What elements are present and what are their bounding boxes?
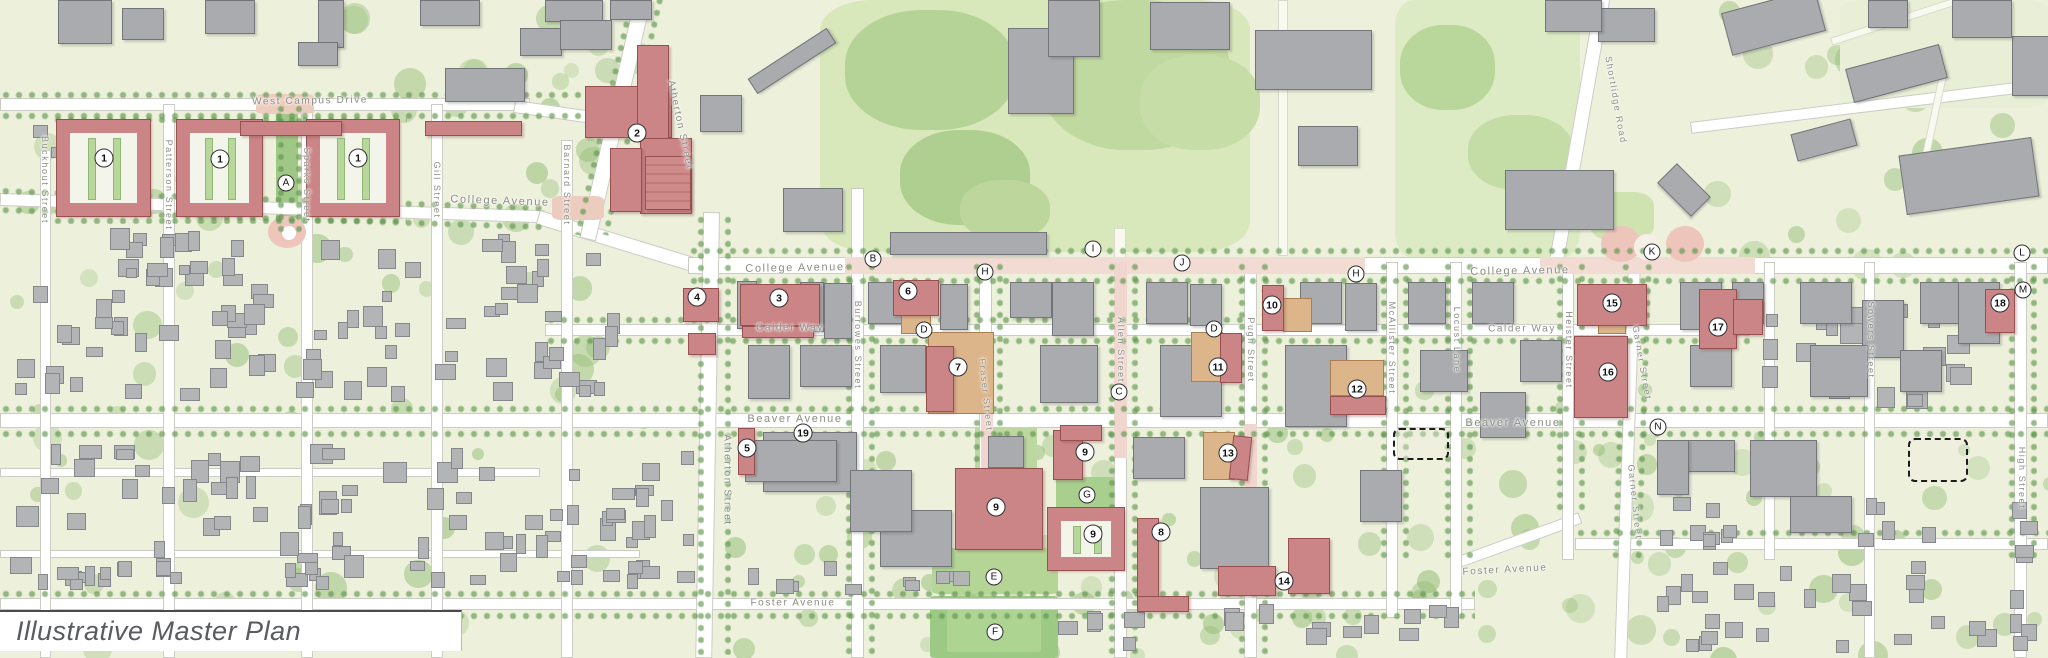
green-space bbox=[845, 10, 1015, 130]
number-marker-7: 7 bbox=[949, 358, 968, 377]
existing-building bbox=[988, 436, 1024, 468]
tree-canopy bbox=[80, 269, 98, 287]
existing-building bbox=[1345, 283, 1377, 331]
existing-building bbox=[445, 68, 525, 102]
existing-house bbox=[1969, 621, 1986, 636]
existing-house bbox=[395, 323, 410, 337]
existing-building bbox=[520, 28, 562, 56]
existing-house bbox=[70, 579, 83, 591]
letter-marker-L: L bbox=[2014, 245, 2031, 262]
existing-house bbox=[557, 571, 570, 581]
existing-house bbox=[100, 567, 111, 580]
existing-house bbox=[537, 259, 549, 277]
street-label: McAllister Street bbox=[1387, 302, 1397, 395]
existing-house bbox=[493, 382, 512, 401]
existing-house bbox=[15, 383, 28, 395]
street-label: Foster Avenue bbox=[1462, 562, 1548, 577]
tree-canopy bbox=[1478, 625, 1496, 643]
courtyard-green bbox=[362, 138, 370, 200]
letter-marker-G: G bbox=[1079, 487, 1096, 504]
existing-house bbox=[495, 303, 508, 316]
existing-building bbox=[700, 95, 742, 132]
existing-house bbox=[33, 286, 47, 303]
existing-house bbox=[405, 262, 421, 278]
street-tree-row bbox=[695, 215, 704, 655]
existing-house bbox=[215, 340, 231, 360]
street-label: Gill Street bbox=[432, 161, 442, 218]
street-tree-row bbox=[0, 404, 2048, 414]
street-label: Burrowes Street bbox=[853, 301, 863, 390]
tree-canopy bbox=[1593, 444, 1605, 456]
existing-building bbox=[1790, 496, 1852, 533]
existing-building bbox=[560, 20, 612, 50]
existing-house bbox=[222, 258, 236, 276]
existing-house bbox=[79, 445, 102, 458]
number-marker-9: 9 bbox=[1084, 525, 1103, 544]
letter-marker-K: K bbox=[1644, 244, 1661, 261]
existing-house bbox=[642, 463, 660, 481]
existing-house bbox=[378, 249, 396, 269]
street-label: College Avenue bbox=[1470, 264, 1569, 278]
existing-building bbox=[745, 440, 837, 482]
existing-house bbox=[45, 373, 59, 394]
existing-house bbox=[593, 338, 606, 360]
existing-building bbox=[1480, 392, 1526, 438]
street-tree-row bbox=[52, 216, 407, 224]
tree-canopy bbox=[1710, 647, 1737, 658]
existing-house bbox=[231, 240, 244, 256]
number-marker-3: 3 bbox=[770, 289, 789, 308]
existing-building bbox=[1255, 30, 1372, 90]
tree-canopy bbox=[1336, 645, 1358, 658]
existing-building bbox=[800, 345, 852, 387]
existing-house bbox=[845, 584, 862, 594]
existing-house bbox=[170, 572, 181, 584]
existing-building bbox=[1360, 470, 1402, 522]
number-marker-9: 9 bbox=[987, 498, 1006, 517]
streetscape-improvement bbox=[845, 257, 1365, 274]
proposed-parking-structure bbox=[1283, 298, 1312, 332]
existing-building bbox=[1133, 437, 1185, 479]
street-label: Foster Avenue bbox=[750, 598, 835, 609]
number-marker-5: 5 bbox=[738, 439, 757, 458]
proposed-building bbox=[926, 346, 954, 412]
street-label: Shortlidge Road bbox=[1603, 56, 1628, 145]
existing-building bbox=[1505, 170, 1614, 230]
existing-building bbox=[1298, 126, 1358, 166]
green-space bbox=[960, 180, 1050, 240]
existing-house bbox=[96, 299, 112, 318]
existing-house bbox=[210, 368, 227, 388]
existing-house bbox=[1686, 639, 1700, 652]
tree-canopy bbox=[65, 482, 83, 500]
existing-house bbox=[1931, 616, 1946, 629]
existing-house bbox=[363, 306, 383, 327]
number-marker-11: 11 bbox=[1209, 358, 1228, 377]
existing-building bbox=[1790, 118, 1857, 161]
existing-building bbox=[1657, 440, 1689, 495]
proposed-building bbox=[610, 148, 642, 212]
street-tree-row bbox=[1554, 262, 1563, 512]
tree-canopy bbox=[541, 179, 560, 198]
existing-house bbox=[605, 326, 618, 347]
tree-canopy bbox=[876, 451, 896, 471]
proposed-building bbox=[1218, 566, 1276, 596]
tree-canopy bbox=[1562, 598, 1578, 614]
existing-house bbox=[1894, 634, 1912, 645]
existing-house bbox=[824, 561, 837, 576]
existing-house bbox=[1673, 497, 1692, 510]
number-marker-15: 15 bbox=[1603, 294, 1622, 313]
letter-marker-H: H bbox=[977, 264, 994, 281]
number-marker-8: 8 bbox=[1152, 523, 1171, 542]
existing-building bbox=[1408, 282, 1446, 324]
existing-house bbox=[1911, 561, 1926, 573]
street-label: College Avenue bbox=[745, 261, 844, 275]
existing-house bbox=[661, 500, 672, 520]
existing-building bbox=[1545, 0, 1602, 32]
tree-canopy bbox=[1727, 552, 1748, 573]
existing-building bbox=[1010, 282, 1052, 318]
existing-house bbox=[1058, 621, 1079, 636]
existing-house bbox=[17, 359, 35, 379]
street bbox=[1575, 538, 2048, 550]
street-label: Locust Lane bbox=[1452, 307, 1462, 374]
existing-house bbox=[85, 566, 95, 586]
existing-building bbox=[1472, 282, 1514, 324]
letter-marker-E: E bbox=[986, 569, 1003, 586]
existing-house bbox=[683, 534, 694, 545]
existing-house bbox=[1950, 367, 1972, 386]
street-label: Calder Way bbox=[756, 323, 824, 334]
existing-house bbox=[316, 576, 329, 590]
existing-house bbox=[188, 231, 201, 250]
tree-canopy bbox=[1478, 580, 1497, 599]
existing-building bbox=[1690, 345, 1732, 387]
existing-house bbox=[1259, 604, 1274, 624]
street-label: Beaver Avenue bbox=[1465, 417, 1560, 429]
proposed-building bbox=[425, 121, 522, 136]
existing-house bbox=[306, 349, 321, 360]
existing-house bbox=[517, 284, 538, 302]
courtyard-green bbox=[228, 138, 236, 200]
tree-canopy bbox=[2043, 477, 2048, 491]
plaza bbox=[1666, 226, 1704, 262]
existing-house bbox=[244, 304, 265, 325]
proposed-building bbox=[1060, 425, 1102, 441]
number-marker-13: 13 bbox=[1219, 444, 1238, 463]
existing-building bbox=[610, 0, 652, 20]
existing-house bbox=[603, 570, 619, 582]
existing-house bbox=[147, 263, 169, 277]
existing-house bbox=[74, 459, 94, 477]
existing-house bbox=[571, 570, 582, 585]
existing-building bbox=[1052, 282, 1094, 336]
existing-house bbox=[1866, 498, 1878, 514]
existing-building bbox=[1721, 0, 1826, 56]
existing-house bbox=[451, 448, 463, 469]
existing-house bbox=[1922, 527, 1936, 543]
tree-canopy bbox=[1836, 208, 1861, 233]
existing-house bbox=[126, 268, 137, 278]
tree-canopy bbox=[1626, 615, 1656, 645]
existing-house bbox=[385, 345, 397, 358]
existing-house bbox=[500, 553, 517, 572]
existing-house bbox=[1907, 394, 1923, 407]
existing-house bbox=[1399, 628, 1419, 640]
existing-house bbox=[333, 532, 343, 546]
existing-house bbox=[445, 351, 458, 362]
existing-house bbox=[305, 562, 317, 576]
existing-house bbox=[435, 364, 457, 380]
tree-canopy bbox=[278, 327, 298, 347]
existing-building bbox=[940, 284, 968, 330]
existing-building bbox=[880, 345, 926, 393]
existing-house bbox=[296, 382, 314, 398]
existing-house bbox=[249, 355, 265, 376]
existing-house bbox=[41, 478, 59, 494]
letter-marker-A: A bbox=[278, 175, 295, 192]
existing-house bbox=[179, 265, 191, 275]
existing-house bbox=[1756, 628, 1769, 642]
existing-house bbox=[449, 515, 468, 530]
letter-marker-F: F bbox=[987, 624, 1004, 641]
existing-house bbox=[418, 537, 429, 559]
existing-building bbox=[824, 283, 852, 339]
existing-house bbox=[485, 532, 504, 550]
existing-house bbox=[112, 290, 124, 303]
existing-building bbox=[58, 0, 112, 44]
letter-marker-J: J bbox=[1174, 255, 1191, 272]
existing-house bbox=[344, 555, 365, 578]
existing-building bbox=[205, 0, 255, 34]
existing-house bbox=[579, 385, 591, 397]
existing-house bbox=[594, 382, 605, 395]
plan-title: Illustrative Master Plan bbox=[16, 616, 301, 647]
letter-marker-C: C bbox=[1111, 384, 1128, 401]
existing-house bbox=[748, 568, 759, 584]
letter-marker-B: B bbox=[865, 251, 882, 268]
proposed-building bbox=[1137, 596, 1189, 612]
existing-house bbox=[1849, 584, 1866, 601]
courtyard-green bbox=[1073, 526, 1081, 554]
letter-marker-M: M bbox=[2015, 282, 2032, 299]
existing-house bbox=[606, 508, 626, 520]
existing-house bbox=[1858, 533, 1874, 547]
existing-house bbox=[344, 381, 362, 400]
existing-house bbox=[953, 571, 971, 586]
existing-house bbox=[321, 240, 341, 259]
street-label: Calder Way bbox=[1488, 324, 1556, 335]
existing-building bbox=[1657, 163, 1711, 217]
number-marker-2: 2 bbox=[628, 124, 647, 143]
existing-house bbox=[446, 318, 466, 329]
existing-building bbox=[545, 0, 603, 22]
existing-house bbox=[545, 311, 561, 322]
existing-house bbox=[110, 228, 130, 250]
existing-house bbox=[342, 485, 358, 497]
existing-house bbox=[226, 477, 238, 499]
tree-canopy bbox=[472, 448, 484, 460]
green-space bbox=[1400, 25, 1495, 110]
existing-building bbox=[122, 8, 164, 40]
street-label: Pugh Street bbox=[1246, 317, 1256, 382]
existing-building bbox=[1040, 345, 1098, 403]
tree-canopy bbox=[1990, 113, 2015, 138]
existing-house bbox=[2020, 521, 2038, 535]
letter-marker-I: I bbox=[1085, 241, 1102, 258]
existing-building bbox=[1520, 340, 1562, 382]
existing-house bbox=[1877, 387, 1895, 408]
number-marker-6: 6 bbox=[899, 282, 918, 301]
existing-house bbox=[470, 575, 486, 585]
existing-house bbox=[559, 372, 580, 387]
street-tree-row bbox=[0, 429, 2048, 439]
proposed-building bbox=[1733, 299, 1763, 335]
existing-house bbox=[482, 239, 504, 252]
existing-house bbox=[1723, 525, 1737, 538]
existing-house bbox=[1087, 613, 1103, 630]
existing-house bbox=[525, 515, 543, 531]
existing-house bbox=[1763, 339, 1778, 360]
street-tree-row bbox=[2028, 262, 2037, 562]
existing-house bbox=[208, 453, 222, 467]
street-label: Heister Street bbox=[1564, 311, 1574, 388]
existing-house bbox=[506, 266, 527, 285]
existing-house bbox=[1836, 640, 1850, 653]
proposed-building bbox=[1288, 538, 1330, 594]
existing-building bbox=[1900, 350, 1942, 392]
tree-canopy bbox=[1805, 55, 1828, 78]
existing-house bbox=[135, 333, 147, 352]
existing-house bbox=[16, 506, 38, 526]
number-marker-10: 10 bbox=[1263, 296, 1282, 315]
proposed-building bbox=[1220, 333, 1242, 383]
existing-house bbox=[322, 448, 346, 460]
number-marker-1: 1 bbox=[211, 150, 230, 169]
letter-marker-D: D bbox=[916, 322, 933, 339]
existing-house bbox=[486, 358, 507, 376]
existing-building bbox=[298, 42, 338, 66]
existing-house bbox=[549, 347, 563, 361]
number-marker-1: 1 bbox=[349, 149, 368, 168]
existing-building bbox=[783, 188, 843, 232]
existing-house bbox=[681, 451, 694, 465]
existing-house bbox=[347, 310, 360, 327]
street-tree-row bbox=[1106, 262, 1115, 658]
existing-building bbox=[1810, 345, 1868, 397]
courtyard-green bbox=[113, 138, 121, 200]
tree-canopy bbox=[1966, 456, 1990, 480]
courtyard-green bbox=[337, 138, 345, 200]
existing-house bbox=[479, 467, 495, 481]
existing-house bbox=[644, 515, 657, 538]
existing-house bbox=[1703, 534, 1715, 547]
existing-building bbox=[1190, 284, 1222, 326]
existing-house bbox=[382, 291, 393, 301]
tree-canopy bbox=[10, 295, 24, 309]
existing-house bbox=[1725, 622, 1743, 638]
existing-house bbox=[303, 359, 322, 381]
existing-building bbox=[1800, 282, 1852, 324]
tree-canopy bbox=[1287, 439, 1303, 455]
existing-house bbox=[1701, 631, 1718, 645]
existing-house bbox=[410, 561, 425, 572]
existing-house bbox=[1404, 609, 1421, 624]
existing-house bbox=[391, 386, 405, 402]
existing-house bbox=[253, 507, 269, 523]
existing-house bbox=[240, 456, 260, 472]
existing-house bbox=[159, 325, 180, 341]
existing-house bbox=[1906, 575, 1924, 590]
tree-canopy bbox=[1663, 629, 1680, 646]
existing-house bbox=[905, 580, 921, 591]
existing-house bbox=[298, 506, 310, 529]
tree-canopy bbox=[733, 638, 755, 658]
existing-house bbox=[1124, 612, 1145, 628]
existing-house bbox=[936, 571, 950, 584]
illustrative-master-plan-map: West Campus DriveCollege AvenueCollege A… bbox=[0, 0, 2048, 658]
existing-house bbox=[501, 241, 516, 262]
existing-building bbox=[1920, 282, 1962, 324]
tree-canopy bbox=[1200, 626, 1220, 646]
existing-house bbox=[550, 509, 562, 520]
existing-house bbox=[1692, 591, 1709, 603]
existing-building bbox=[1048, 0, 1100, 57]
existing-house bbox=[86, 347, 103, 357]
existing-house bbox=[51, 444, 61, 465]
existing-house bbox=[180, 388, 201, 401]
number-marker-16: 16 bbox=[1599, 363, 1618, 382]
existing-house bbox=[280, 532, 299, 555]
existing-building bbox=[850, 470, 912, 532]
existing-house bbox=[1766, 314, 1778, 327]
existing-house bbox=[214, 516, 231, 530]
future-development-site bbox=[1908, 438, 1968, 482]
existing-house bbox=[367, 367, 387, 387]
existing-house bbox=[1343, 626, 1362, 638]
future-development-site bbox=[1393, 428, 1449, 460]
existing-house bbox=[1713, 562, 1728, 574]
existing-house bbox=[516, 534, 526, 555]
existing-house bbox=[427, 488, 444, 510]
proposed-building bbox=[688, 333, 716, 355]
existing-house bbox=[1681, 574, 1694, 592]
existing-building bbox=[1146, 282, 1188, 324]
courtyard-green bbox=[88, 138, 96, 200]
proposed-building bbox=[240, 121, 342, 136]
letter-marker-N: N bbox=[1650, 419, 1667, 436]
existing-house bbox=[677, 571, 695, 583]
number-marker-18: 18 bbox=[1991, 294, 2010, 313]
existing-house bbox=[1780, 566, 1793, 581]
existing-house bbox=[122, 479, 137, 499]
existing-building bbox=[2012, 36, 2048, 96]
number-marker-17: 17 bbox=[1709, 318, 1728, 337]
existing-house bbox=[636, 488, 649, 507]
tree-canopy bbox=[340, 3, 370, 33]
existing-house bbox=[246, 476, 256, 498]
existing-house bbox=[1804, 589, 1816, 608]
existing-building bbox=[1200, 487, 1269, 569]
existing-building bbox=[1150, 2, 1230, 50]
green-space bbox=[1140, 55, 1260, 150]
existing-house bbox=[1123, 637, 1136, 651]
street-label: Sparks Street bbox=[302, 147, 312, 222]
letter-marker-D: D bbox=[1206, 321, 1223, 338]
existing-house bbox=[535, 244, 549, 256]
existing-house bbox=[10, 557, 32, 574]
